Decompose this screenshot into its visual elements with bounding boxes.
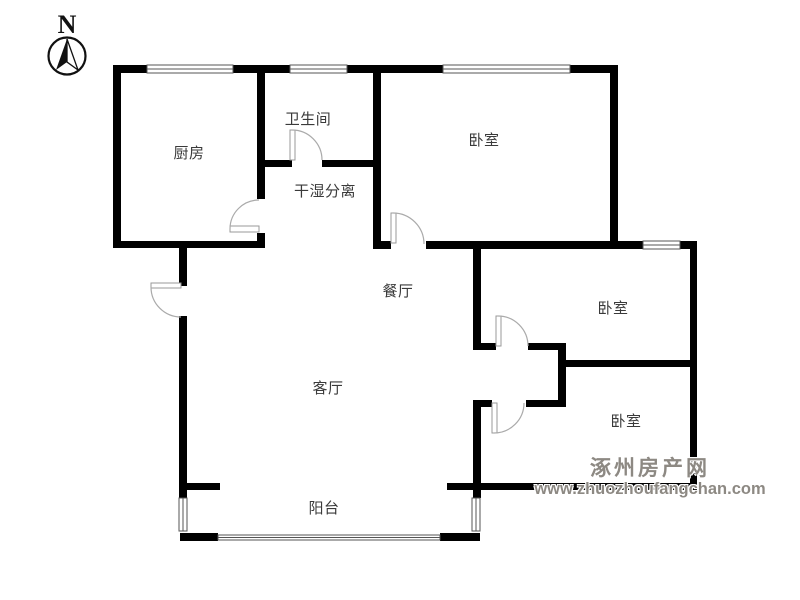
room-label-living-room: 客厅 xyxy=(312,380,343,397)
wall xyxy=(180,533,218,541)
wall xyxy=(257,233,265,248)
kitchen-window xyxy=(147,65,233,73)
bedroom-east-window xyxy=(643,241,680,249)
bedroom-north-window xyxy=(443,65,570,73)
wall xyxy=(113,65,121,248)
wall xyxy=(558,343,566,407)
wall xyxy=(610,65,618,249)
compass-needle-right-icon xyxy=(67,39,78,70)
bathroom-door xyxy=(290,130,322,160)
wall xyxy=(179,316,187,498)
wall xyxy=(113,241,265,248)
floorplan-drawing: N xyxy=(0,0,800,600)
bedroom-southeast-door xyxy=(492,403,524,433)
bedroom-north-door xyxy=(391,213,424,244)
room-labels: 厨房 卫生间 干湿分离 卧室 餐厅 卧室 卧室 客厅 阳台 xyxy=(173,111,641,517)
room-label-dry-wet-separation: 干湿分离 xyxy=(294,183,356,200)
room-label-bedroom-east: 卧室 xyxy=(597,300,628,317)
wall xyxy=(447,483,697,490)
wall xyxy=(347,65,443,73)
entrance-door xyxy=(151,283,181,317)
wall xyxy=(373,65,381,248)
room-label-bathroom: 卫生间 xyxy=(285,111,332,128)
wall xyxy=(558,360,697,367)
room-label-balcony: 阳台 xyxy=(308,500,339,517)
wall xyxy=(179,241,187,286)
bathroom-window xyxy=(290,65,347,73)
wall xyxy=(322,160,381,167)
wall xyxy=(440,533,480,541)
balcony-right-window xyxy=(472,498,480,531)
compass-needle-left-icon xyxy=(56,39,67,70)
wall xyxy=(473,400,481,498)
wall xyxy=(257,65,265,199)
balcony-front-window xyxy=(218,535,440,540)
wall xyxy=(690,241,697,490)
room-label-kitchen: 厨房 xyxy=(173,145,204,162)
room-label-bedroom-southeast: 卧室 xyxy=(610,413,641,430)
bedroom-east-door xyxy=(496,316,528,346)
floorplan-page: N xyxy=(0,0,800,600)
kitchen-door xyxy=(230,200,259,232)
wall xyxy=(473,241,481,350)
room-label-bedroom-north: 卧室 xyxy=(468,132,499,149)
balcony-left-window xyxy=(179,498,187,531)
compass-north-label: N xyxy=(58,10,77,39)
room-label-dining-room: 餐厅 xyxy=(382,283,413,300)
compass: N xyxy=(49,10,86,75)
